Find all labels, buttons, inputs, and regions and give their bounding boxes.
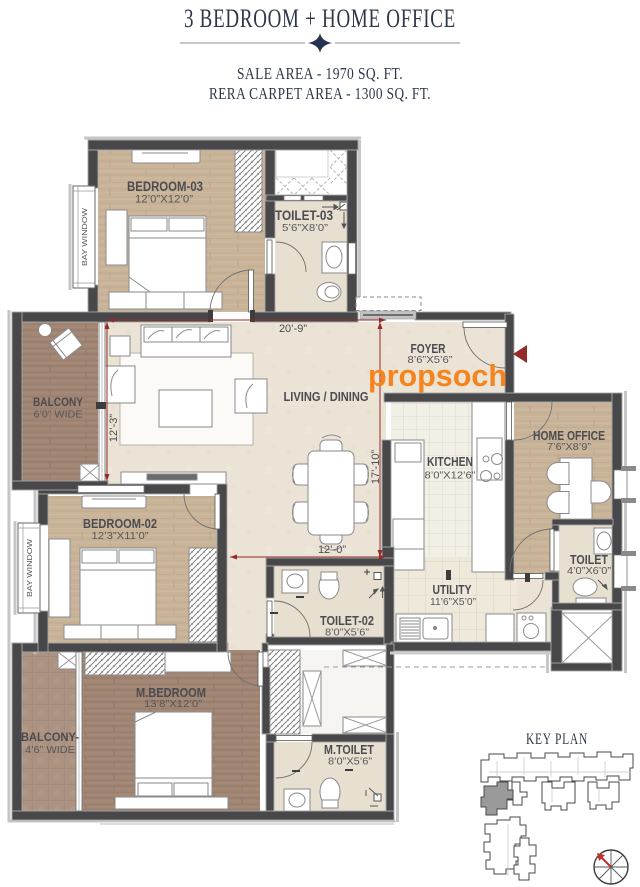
svg-text:3 BEDROOM + HOME OFFICE: 3 BEDROOM + HOME OFFICE: [184, 4, 456, 33]
svg-text:KITCHEN: KITCHEN: [427, 454, 473, 469]
svg-text:8’0”X5’6”: 8’0”X5’6”: [325, 627, 370, 639]
svg-text:LIVING / DINING: LIVING / DINING: [284, 389, 369, 404]
svg-text:20’-9”: 20’-9”: [279, 323, 307, 335]
svg-text:12’3”X11’0”: 12’3”X11’0”: [92, 530, 150, 542]
svg-text:BALCONY-: BALCONY-: [21, 730, 79, 744]
svg-text:8’0”X5’6”: 8’0”X5’6”: [328, 756, 373, 768]
svg-text:TOILET-03: TOILET-03: [275, 208, 333, 223]
svg-text:RERA CARPET AREA - 1300 SQ. FT: RERA CARPET AREA - 1300 SQ. FT.: [209, 84, 431, 103]
svg-text:8’0”X12’6”: 8’0”X12’6”: [425, 470, 477, 482]
svg-text:UTILITY: UTILITY: [433, 583, 473, 597]
svg-text:BEDROOM-02: BEDROOM-02: [83, 516, 157, 531]
svg-text:7’6”X8’9”: 7’6”X8’9”: [547, 441, 592, 453]
svg-text:13’8”X12’0”: 13’8”X12’0”: [144, 698, 203, 710]
svg-text:BAY WINDOW: BAY WINDOW: [80, 207, 89, 266]
svg-text:6’0” WIDE: 6’0” WIDE: [34, 409, 83, 421]
svg-text:17’-10”: 17’-10”: [370, 450, 382, 485]
svg-text:propsoch: propsoch: [368, 359, 507, 393]
svg-text:4’6” WIDE: 4’6” WIDE: [25, 744, 75, 756]
svg-text:11’6”X5’0”: 11’6”X5’0”: [430, 596, 476, 608]
svg-text:4’0”X6’0”: 4’0”X6’0”: [567, 565, 612, 577]
svg-text:SALE AREA - 1970 SQ. FT.: SALE AREA - 1970 SQ. FT.: [237, 64, 403, 83]
svg-text:KEY PLAN: KEY PLAN: [526, 731, 588, 748]
svg-text:5’6”X8’0”: 5’6”X8’0”: [282, 222, 329, 234]
svg-text:BALCONY: BALCONY: [33, 395, 83, 409]
svg-text:BEDROOM-03: BEDROOM-03: [127, 179, 203, 194]
svg-text:12’0”X12’0”: 12’0”X12’0”: [135, 194, 193, 206]
svg-text:BAY WINDOW: BAY WINDOW: [25, 538, 34, 597]
svg-text:12’-0”: 12’-0”: [318, 544, 346, 556]
svg-text:12’-3”: 12’-3”: [108, 414, 120, 442]
